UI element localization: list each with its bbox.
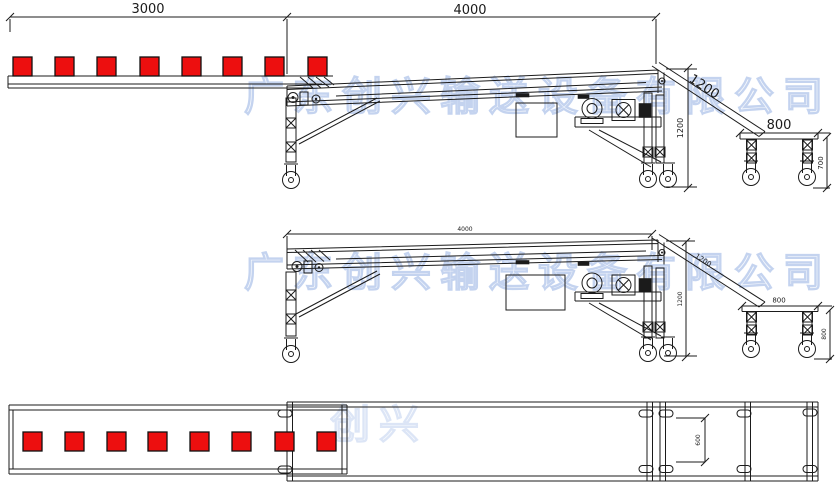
incline-chute: 1200: [652, 235, 765, 308]
dim-label-800-2: 800: [772, 297, 785, 305]
drive-unit: [575, 273, 661, 340]
product-row-side: [13, 57, 327, 76]
product-box: [65, 432, 84, 451]
product-box: [23, 432, 42, 451]
dim-label-4000: 4000: [453, 3, 486, 18]
motor: [582, 273, 602, 293]
caster-wheel: [660, 337, 677, 362]
discharge-table: 800: [736, 118, 830, 186]
feed-conveyor: [8, 76, 334, 105]
view-side-with-products: 3000 4000: [6, 2, 831, 192]
dim-table-height: 700: [813, 133, 831, 192]
tail-leg: [283, 271, 381, 363]
dim-label-800: 800: [767, 118, 792, 133]
dim-label-700: 700: [817, 156, 825, 169]
product-box: [275, 432, 294, 451]
caster-wheel: [640, 163, 657, 188]
caster-wheel: [743, 161, 760, 186]
product-box: [232, 432, 251, 451]
product-box: [223, 57, 242, 76]
main-conveyor-plan: [278, 402, 818, 481]
product-box: [308, 57, 327, 76]
drawing-canvas: 3000 4000: [0, 0, 840, 494]
product-box: [13, 57, 32, 76]
product-box: [182, 57, 201, 76]
dim-label-height-1200: 1200: [676, 118, 685, 138]
motor-terminal-box: [639, 104, 651, 118]
main-conveyor-frame: [287, 70, 664, 106]
control-box: [516, 103, 557, 137]
discharge-table: 800: [738, 297, 832, 358]
caster-wheel: [799, 333, 816, 358]
caster-wheel: [660, 163, 677, 188]
product-box: [317, 432, 336, 451]
dim-label-600: 600: [695, 434, 702, 446]
technical-drawing: 广东创兴输送设备有限公司 广东创兴输送设备有限公司 创兴 3000 4000: [0, 0, 840, 494]
dim-label-incline-1200: 1200: [686, 72, 722, 103]
product-row-plan: [23, 432, 336, 451]
product-box: [265, 57, 284, 76]
caster-wheel: [799, 161, 816, 186]
caster-wheel: [743, 333, 760, 358]
product-box: [55, 57, 74, 76]
main-conveyor-frame: [287, 240, 664, 273]
view-side: 4000: [283, 226, 835, 363]
caster-wheel: [640, 337, 657, 362]
dim-label-800-height: 800: [821, 328, 828, 340]
tail-leg: [283, 98, 381, 189]
product-box: [190, 432, 209, 451]
feed-conveyor-plan: [9, 405, 347, 474]
caster-wheel: [283, 164, 300, 189]
incline-chute: 1200: [652, 63, 765, 137]
dim-label-3000: 3000: [131, 2, 164, 17]
product-box: [107, 432, 126, 451]
dim-table-height: 800: [814, 306, 834, 363]
control-box: [506, 275, 565, 310]
motor: [582, 99, 602, 119]
caster-wheel: [283, 338, 300, 363]
dim-label-height-1200-2: 1200: [677, 291, 684, 306]
dim-label-4000-2: 4000: [457, 226, 472, 233]
product-box: [140, 57, 159, 76]
product-box: [148, 432, 167, 451]
product-box: [97, 57, 116, 76]
dim-belt-width: 600: [676, 414, 709, 466]
view-plan: 600: [9, 402, 818, 481]
